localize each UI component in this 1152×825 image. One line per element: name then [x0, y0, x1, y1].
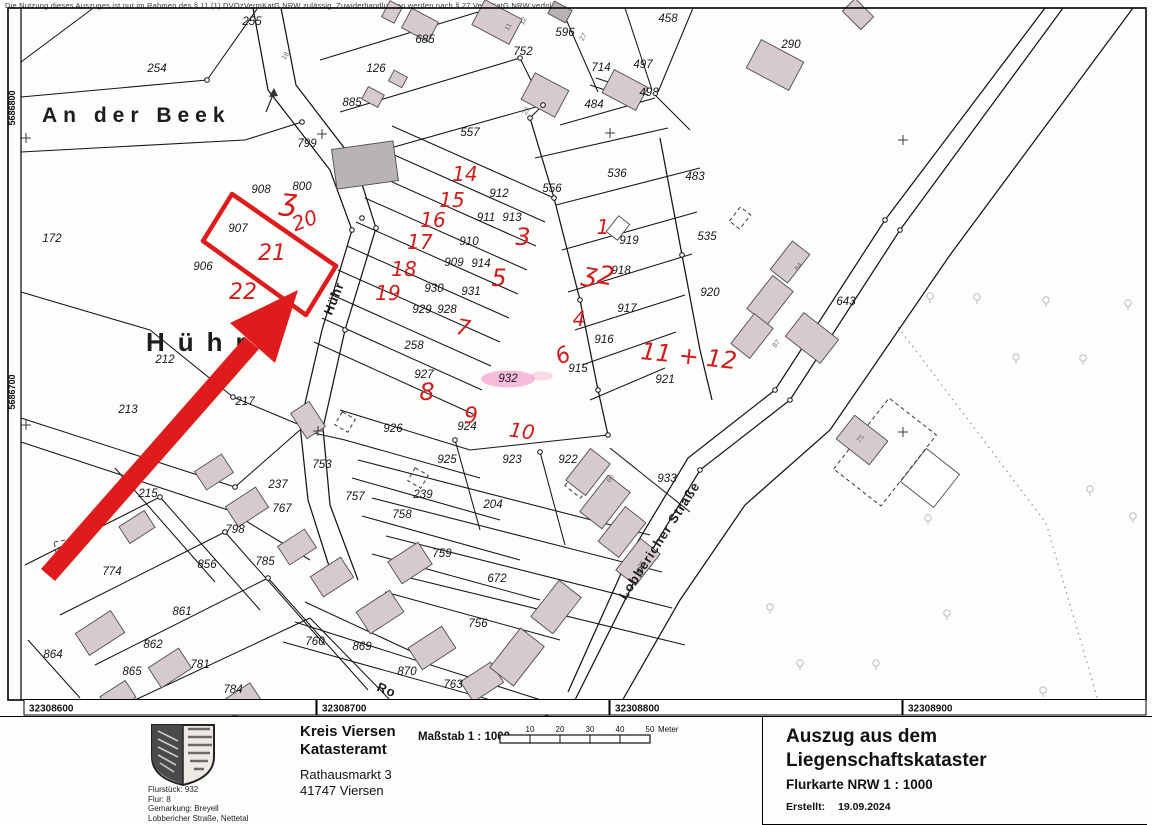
- northing-label-5686800: 5686800: [7, 90, 17, 125]
- parcel-596: 596: [555, 27, 575, 39]
- scale-tick-50: 50: [646, 725, 655, 734]
- parcel-boundary-line: [245, 122, 302, 140]
- parcel-885: 885: [342, 97, 362, 109]
- building: [472, 0, 522, 44]
- scale-tick-20: 20: [556, 725, 565, 734]
- boundary-point-icon: [578, 298, 583, 303]
- parcel-763: 763: [443, 679, 463, 691]
- parcel-759: 759: [432, 548, 452, 560]
- parcel-799: 799: [297, 138, 317, 150]
- building: [408, 626, 456, 670]
- dashed-building-outline: [729, 207, 750, 229]
- parcel-908: 908: [251, 184, 271, 196]
- boundary-point-icon: [453, 438, 458, 443]
- parcel-boundary-line: [562, 10, 598, 92]
- parcel-boundary-line: [470, 435, 608, 450]
- handwritten-mark-1: 1: [597, 215, 610, 239]
- handwritten-mark-5: 5: [491, 264, 506, 292]
- boundary-point-icon: [883, 218, 888, 223]
- tree-symbol: [1043, 297, 1049, 307]
- parcel-483: 483: [685, 171, 705, 183]
- building: [389, 70, 408, 88]
- created-label: Erstellt:: [786, 801, 825, 813]
- parcel-213: 213: [117, 404, 138, 416]
- parcel-756: 756: [468, 618, 488, 630]
- parcel-254: 254: [146, 63, 166, 75]
- building-number: 12: [519, 16, 529, 26]
- building: [225, 487, 268, 527]
- parcel-498: 498: [639, 87, 659, 99]
- street-label-ro: Ro: [375, 679, 399, 700]
- parcel-910: 910: [459, 236, 479, 248]
- handwritten-mark-22: 22: [229, 280, 257, 305]
- gemarkung: Gemarkung: Breyell: [148, 804, 249, 814]
- tree-symbol: [974, 294, 980, 304]
- parcel-info-block: Flurstück: 932 Flur: 8 Gemarkung: Breyel…: [148, 785, 249, 823]
- handwritten-mark-11+12: 11 + 12: [639, 337, 738, 375]
- handwritten-mark-21: 21: [258, 241, 286, 266]
- easting-label-32308800: 32308800: [615, 704, 660, 715]
- handwritten-mark-3: 3: [515, 223, 530, 251]
- parcel-911: 911: [477, 212, 495, 224]
- parcel-906: 906: [193, 261, 213, 273]
- parcel-909: 909: [444, 257, 464, 269]
- northing-label-5686700: 5686700: [7, 374, 17, 409]
- parcel-929: 929: [412, 304, 432, 316]
- highlight-smear: [531, 372, 553, 381]
- parcel-923: 923: [502, 454, 522, 466]
- boundary-point-icon: [360, 216, 365, 221]
- handwritten-mark-8: 8: [419, 378, 434, 406]
- footer: Kreis Viersen Katasteramt Rathausmarkt 3…: [0, 716, 1152, 825]
- handwritten-mark-ʒ2: ʒ2: [579, 257, 616, 292]
- doc-title-line2: Liegenschaftskataster: [786, 749, 987, 773]
- parcel-758: 758: [392, 509, 412, 521]
- tree-symbol: [797, 660, 803, 670]
- parcel-869: 869: [352, 641, 372, 653]
- handwritten-mark-17: 17: [407, 230, 433, 254]
- boundary-point-icon: [788, 398, 793, 403]
- boundary-point-icon: [233, 485, 238, 490]
- handwritten-mark-16: 16: [420, 208, 445, 232]
- handwritten-mark-9: 9: [464, 404, 478, 429]
- title-box: Auszug aus dem Liegenschaftskataster Flu…: [762, 717, 1147, 825]
- parcel-926: 926: [383, 423, 403, 435]
- building: [382, 1, 403, 23]
- flurstueck: Flurstück: 932: [148, 785, 249, 795]
- building: [388, 542, 432, 583]
- boundary-point-icon: [343, 328, 348, 333]
- boundary-point-icon: [300, 120, 305, 125]
- survey-cross-icon: [21, 133, 31, 143]
- parcel-258: 258: [403, 340, 424, 352]
- parcel-boundary-line: [21, 292, 150, 330]
- parcel-785: 785: [255, 556, 275, 568]
- boundary-point-icon: [205, 78, 210, 83]
- boundary-point-icon: [541, 103, 546, 108]
- building: [901, 449, 960, 508]
- parcel-boundary-line: [320, 12, 478, 60]
- parcel-556: 556: [542, 183, 562, 195]
- easting-label-32308900: 32308900: [908, 704, 953, 715]
- boundary-point-icon: [528, 116, 533, 121]
- easting-label-32308700: 32308700: [322, 704, 367, 715]
- parcel-126: 126: [366, 63, 386, 75]
- parcel-932: 932: [498, 373, 518, 385]
- parcel-914: 914: [471, 258, 490, 270]
- handwritten-mark-19: 19: [375, 281, 400, 305]
- boundary-point-icon: [596, 388, 601, 393]
- parcel-753: 753: [312, 459, 332, 471]
- tree-symbol: [1040, 687, 1046, 697]
- parcel-boundary-line: [455, 440, 480, 530]
- parcel-916: 916: [594, 334, 614, 346]
- tree-symbol: [1080, 355, 1086, 365]
- boundary-point-icon: [898, 228, 903, 233]
- created-date: 19.09.2024: [838, 801, 891, 813]
- building-number: 87: [772, 339, 782, 350]
- issuer-name: Kreis Viersen: [300, 723, 396, 741]
- parcel-458: 458: [658, 13, 678, 25]
- parcel-752: 752: [513, 46, 533, 58]
- building-number: 23: [522, 106, 532, 116]
- dashed-building-outline: [408, 468, 428, 488]
- parcel-781: 781: [190, 659, 209, 671]
- parcel-865: 865: [122, 666, 142, 678]
- building: [148, 648, 191, 688]
- parcel-767: 767: [272, 503, 292, 515]
- parcel-917: 917: [617, 303, 637, 315]
- issuer-dept: Katasteramt: [300, 741, 396, 759]
- building: [785, 313, 838, 364]
- parcel-boundary-line: [535, 128, 668, 158]
- tree-symbol: [1125, 300, 1131, 310]
- parcel-685: 685: [415, 34, 435, 46]
- building: [332, 141, 399, 189]
- parcel-798: 798: [225, 524, 245, 536]
- parcel-921: 921: [655, 374, 674, 386]
- cadastral-extract-page: Die Nutzung dieses Auszuges ist nur im R…: [0, 0, 1152, 825]
- parcel-774: 774: [102, 566, 121, 578]
- issuer-city: 41747 Viersen: [300, 783, 392, 799]
- handwritten-mark-10: 10: [508, 417, 537, 444]
- parcel-484: 484: [584, 99, 603, 111]
- lage: Lobbericher Straße, Nettetal: [148, 814, 249, 824]
- parcel-919: 919: [619, 235, 639, 247]
- parcel-714: 714: [591, 62, 610, 74]
- boundary-point-icon: [606, 433, 611, 438]
- parcel-672: 672: [487, 573, 507, 585]
- scale-tick-10: 10: [526, 725, 535, 734]
- tree-symbol: [925, 515, 931, 525]
- issuer-street: Rathausmarkt 3: [300, 767, 392, 783]
- parcel-172: 172: [42, 233, 62, 245]
- parcel-536: 536: [607, 168, 627, 180]
- survey-cross-icon: [605, 128, 615, 138]
- parcel-255: 255: [241, 16, 262, 28]
- tree-symbol: [873, 660, 879, 670]
- parcel-boundary-line: [21, 9, 92, 62]
- tree-symbol: [944, 610, 950, 620]
- kreis-viersen-coat-of-arms-icon: [148, 723, 218, 787]
- survey-cross-icon: [898, 427, 908, 437]
- survey-cross-icon: [317, 129, 327, 139]
- boundary-point-icon: [552, 196, 557, 201]
- tree-symbol: [767, 604, 773, 614]
- boundary-point-icon: [698, 468, 703, 473]
- easting-label-32308600: 32308600: [29, 704, 74, 715]
- parcel-931: 931: [461, 286, 480, 298]
- parcel-boundary-line: [590, 368, 665, 400]
- tree-symbol: [1013, 354, 1019, 364]
- parcel-217: 217: [234, 396, 255, 408]
- boundary-point-icon: [538, 450, 543, 455]
- parcel-237: 237: [267, 479, 288, 491]
- parcel-933: 933: [657, 473, 677, 485]
- scale-bar: 1020304050Meter: [495, 723, 695, 749]
- boundary-point-icon: [266, 576, 271, 581]
- parcel-856: 856: [197, 559, 217, 571]
- boundary-point-icon: [680, 253, 685, 258]
- handwritten-mark-7: 7: [454, 315, 472, 342]
- parcel-907: 907: [228, 223, 248, 235]
- parcel-925: 925: [437, 454, 457, 466]
- scale-unit: Meter: [658, 725, 679, 734]
- building: [531, 580, 581, 633]
- handwritten-mark-14: 14: [452, 162, 477, 186]
- street-label-an-der-beek: An der Beek: [42, 104, 231, 127]
- parcel-912: 912: [489, 188, 509, 200]
- scale-bar-body: [500, 735, 650, 743]
- dashed-building-outline: [335, 412, 355, 432]
- boundary-point-icon: [374, 226, 379, 231]
- doc-title-line1: Auszug aus dem: [786, 725, 987, 749]
- handwritten-mark-18: 18: [391, 257, 416, 281]
- cadastral-map: 2552541726851268855967527144974582904984…: [0, 0, 1152, 716]
- boundary-point-icon: [158, 495, 163, 500]
- parcel-boundary-line: [655, 95, 690, 130]
- boundary-point-icon: [350, 228, 355, 233]
- parcel-930: 930: [424, 283, 444, 295]
- building-number: 27: [579, 32, 589, 42]
- parcel-557: 557: [460, 127, 480, 139]
- parcel-760: 760: [305, 636, 325, 648]
- parcel-928: 928: [437, 304, 457, 316]
- parcel-535: 535: [697, 231, 717, 243]
- flur: Flur: 8: [148, 795, 249, 805]
- parcel-boundary-line: [21, 140, 245, 152]
- parcel-922: 922: [558, 454, 578, 466]
- building: [356, 590, 404, 634]
- parcel-643: 643: [836, 296, 856, 308]
- parcel-497: 497: [633, 59, 653, 71]
- handwritten-mark-4: 4: [573, 307, 586, 331]
- tree-symbol: [927, 293, 933, 303]
- building: [770, 241, 810, 283]
- scale-tick-30: 30: [586, 725, 595, 734]
- building: [75, 611, 124, 656]
- parcel-boundary-line: [314, 342, 473, 414]
- tree-symbol: [1087, 486, 1093, 496]
- parcel-861: 861: [172, 606, 191, 618]
- parcel-204: 204: [482, 499, 502, 511]
- building: [278, 529, 317, 565]
- parcel-862: 862: [143, 639, 163, 651]
- boundary-point-icon: [773, 388, 778, 393]
- parcel-boundary-line: [268, 578, 368, 690]
- parcel-870: 870: [397, 666, 417, 678]
- building: [548, 1, 572, 23]
- parcel-239: 239: [412, 489, 433, 501]
- survey-cross-icon: [898, 135, 908, 145]
- parcel-864: 864: [43, 649, 62, 661]
- parcel-757: 757: [345, 491, 365, 503]
- parcel-920: 920: [700, 287, 720, 299]
- dotted-boundary: [898, 327, 1098, 700]
- building: [310, 557, 353, 597]
- parcel-boundary-line: [556, 168, 700, 205]
- survey-cross-icon: [21, 420, 31, 430]
- building: [842, 0, 873, 30]
- parcel-290: 290: [780, 39, 801, 51]
- parcel-784: 784: [223, 684, 242, 696]
- doc-subtitle: Flurkarte NRW 1 : 1000: [786, 777, 933, 792]
- parcel-215: 215: [137, 488, 158, 500]
- tree-symbol: [1130, 513, 1136, 523]
- scale-tick-40: 40: [616, 725, 625, 734]
- parcel-boundary-line: [21, 80, 207, 97]
